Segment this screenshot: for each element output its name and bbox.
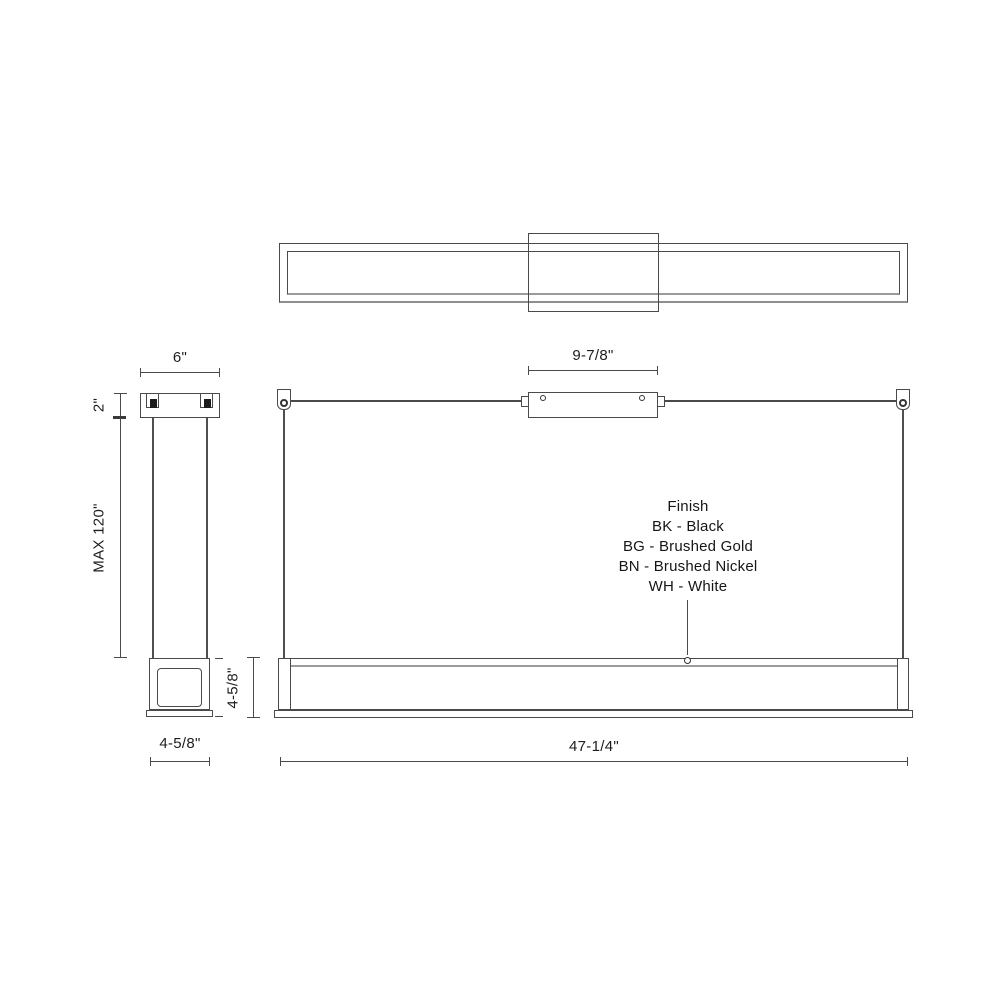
finish-leader-line (687, 600, 688, 655)
canopy-screw-icon (639, 395, 645, 401)
dim-line-body-width (150, 761, 210, 762)
dim-tick (150, 757, 151, 766)
finish-leader-dot (684, 657, 691, 664)
finish-title: Finish (599, 497, 777, 517)
ceiling-line-right (664, 400, 897, 402)
finish-legend: Finish BK - Black BG - Brushed Gold BN -… (599, 497, 777, 597)
canopy-screw-icon (540, 395, 546, 401)
dim-line-fixture-length (280, 761, 908, 762)
dim-label-fixture-height: 4-5/8" (225, 667, 242, 708)
suspension-cable (152, 418, 154, 658)
dim-tick (219, 368, 220, 377)
cable-gripper-core (150, 399, 157, 408)
dim-label-canopy-width: 9-7/8" (528, 347, 658, 364)
finish-option: WH - White (599, 577, 777, 597)
dim-line-2in (120, 393, 121, 418)
extension-line (215, 658, 223, 659)
dim-label-2in: 2" (91, 398, 108, 412)
dim-label-body-width: 4-5/8" (130, 735, 230, 752)
dim-label-fixture-length: 47-1/4" (280, 738, 908, 755)
dim-label-max120: MAX 120" (91, 503, 108, 572)
dim-line-fixture-height (253, 658, 254, 718)
dim-tick (247, 717, 260, 718)
dim-line-6in (140, 372, 220, 373)
extension-line (215, 716, 223, 717)
dim-label-6in: 6" (140, 349, 220, 366)
dim-tick (140, 368, 141, 377)
dim-tick (209, 757, 210, 766)
suspension-cable (206, 418, 208, 658)
dim-line-canopy-width (528, 370, 658, 371)
ceiling-line-left (290, 400, 522, 402)
dim-tick (114, 393, 127, 394)
dim-line-max120 (120, 418, 121, 658)
fixture-top-shadow-line (291, 665, 897, 667)
side-fixture-lens (157, 668, 202, 707)
canopy-side-tab (657, 396, 665, 407)
finish-option: BG - Brushed Gold (599, 537, 777, 557)
anchor-screw-icon (280, 399, 288, 407)
dim-tick (528, 366, 529, 375)
side-fixture-bottom-bar (146, 710, 213, 717)
drawing-canvas: 6" 2" MAX 120" 4-5/8" (0, 0, 1000, 1000)
dim-tick (657, 366, 658, 375)
suspension-cable (902, 410, 904, 658)
finish-option: BN - Brushed Nickel (599, 557, 777, 577)
suspension-cable (283, 410, 285, 658)
dim-tick (280, 757, 281, 766)
fixture-endcap-line (897, 658, 898, 710)
anchor-screw-icon (899, 399, 907, 407)
dim-tick (114, 657, 127, 658)
dim-tick (907, 757, 908, 766)
cable-gripper-core (204, 399, 211, 408)
finish-option: BK - Black (599, 517, 777, 537)
dim-tick (247, 657, 260, 658)
front-fixture-bottom-bar (274, 710, 913, 718)
top-view-canopy (528, 233, 659, 312)
